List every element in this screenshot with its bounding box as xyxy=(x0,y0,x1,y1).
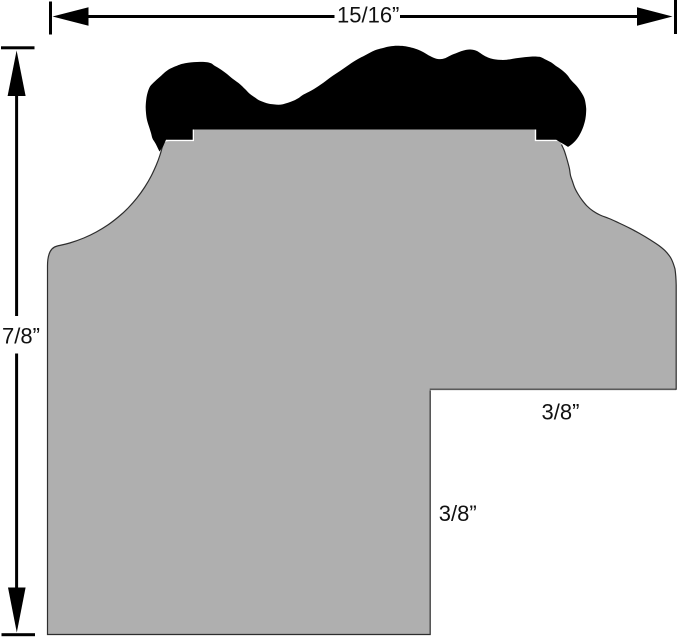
svg-text:3/8”: 3/8” xyxy=(542,400,580,425)
svg-text:3/8”: 3/8” xyxy=(439,501,477,526)
svg-text:7/8”: 7/8” xyxy=(2,324,40,349)
svg-text:15/16”: 15/16” xyxy=(337,3,399,28)
